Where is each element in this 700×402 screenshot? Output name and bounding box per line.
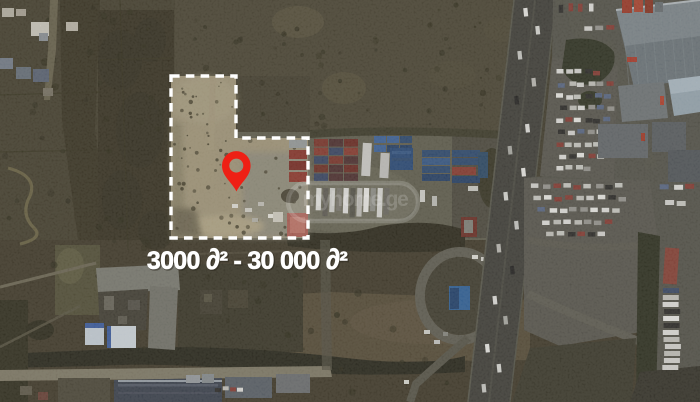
svg-text:3000 ∂² - 30 000 ∂²: 3000 ∂² - 30 000 ∂² [147, 244, 348, 276]
svg-text:myhome.ge: myhome.ge [303, 188, 409, 211]
